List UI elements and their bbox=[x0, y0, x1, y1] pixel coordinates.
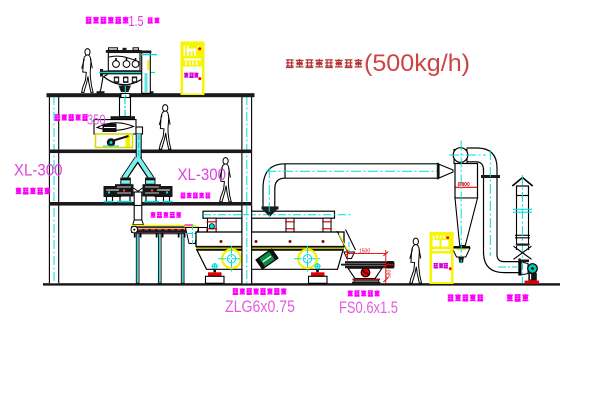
svg-text:FS0.6x1.5: FS0.6x1.5 bbox=[339, 299, 398, 317]
svg-text:Ø800: Ø800 bbox=[458, 182, 470, 188]
svg-text:1.5: 1.5 bbox=[129, 14, 144, 30]
svg-text:XL-300: XL-300 bbox=[14, 161, 63, 180]
svg-text:(500kg/h): (500kg/h) bbox=[364, 50, 470, 77]
svg-text:350: 350 bbox=[87, 112, 106, 129]
svg-text:XL-300: XL-300 bbox=[178, 165, 227, 184]
svg-text:ZLG6x0.75: ZLG6x0.75 bbox=[225, 297, 295, 316]
svg-text:1500: 1500 bbox=[359, 249, 370, 255]
svg-text:580: 580 bbox=[387, 269, 393, 278]
